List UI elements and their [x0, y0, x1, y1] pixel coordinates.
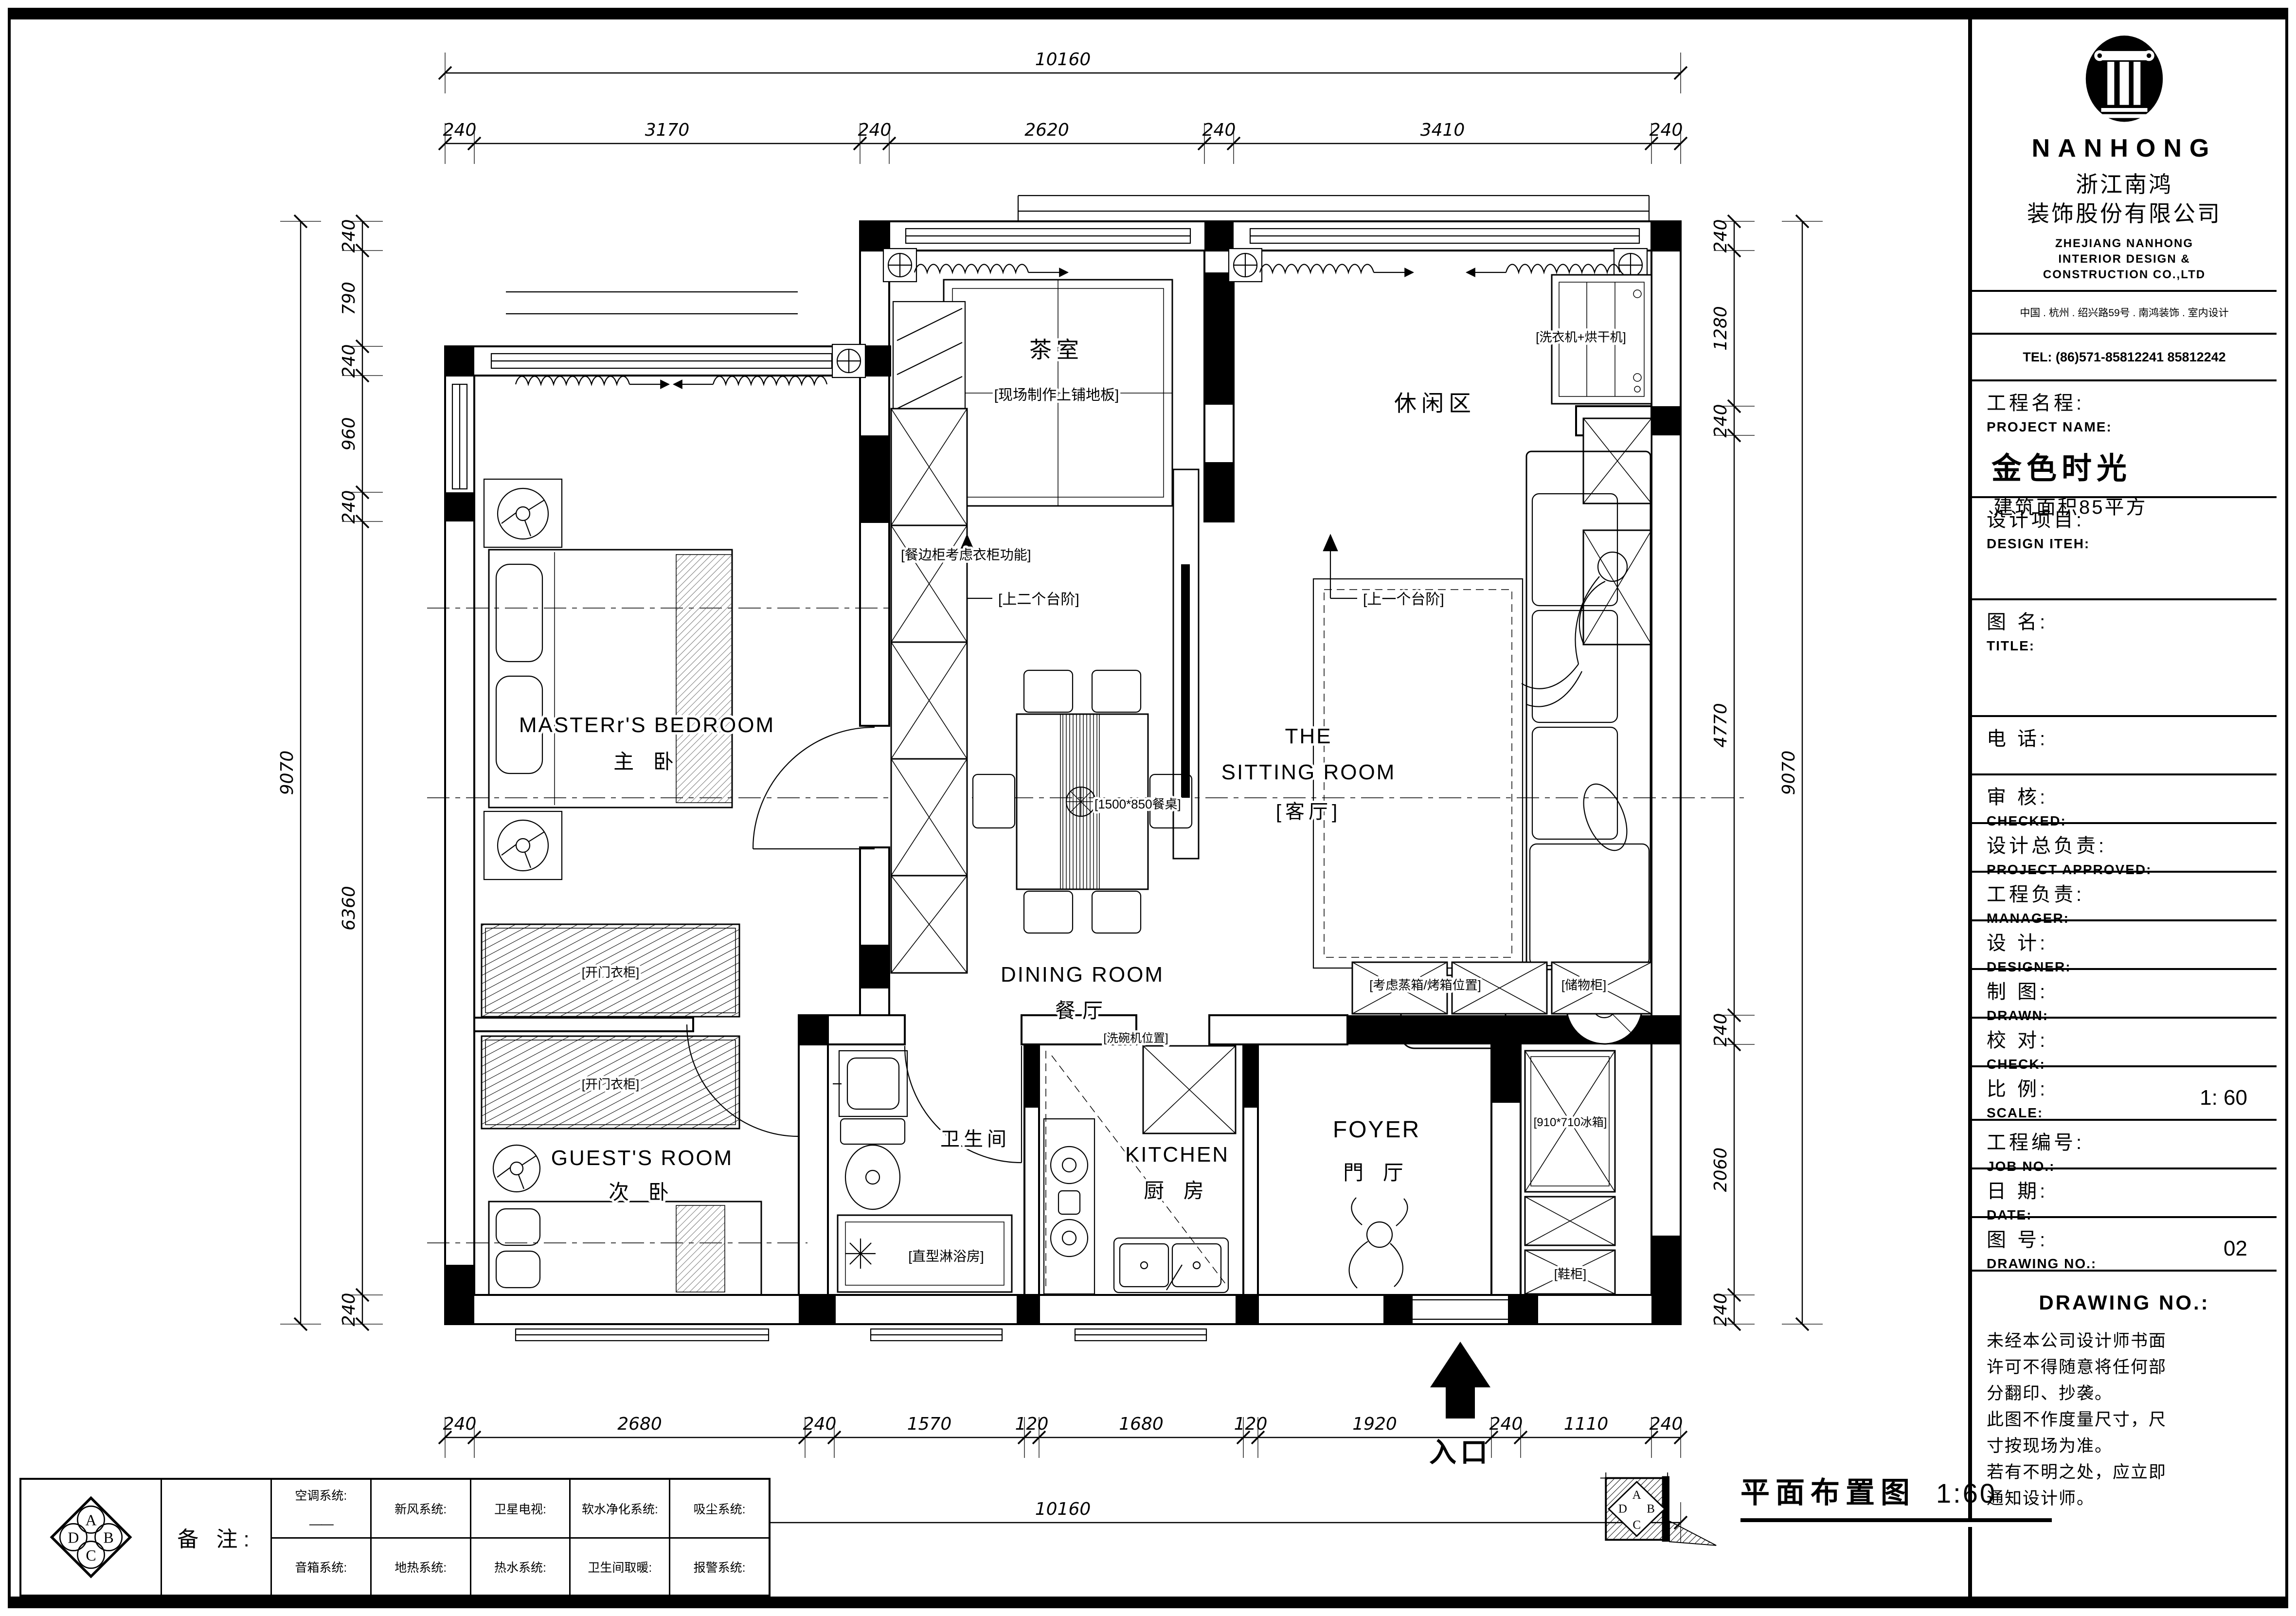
- label-foyer-cn: 門 厅: [1343, 1161, 1410, 1184]
- title-block: NANHONG 浙江南鸿 装饰股份有限公司 ZHEJIANG NANHONG I…: [1968, 19, 2277, 1597]
- label-steps-two: [上二个台阶]: [998, 592, 1079, 608]
- disclaimer-heading: DRAWING NO.:: [1987, 1291, 2262, 1314]
- label-oven: [考虑蒸箱/烤箱位置]: [1369, 978, 1481, 992]
- ceiling-fan-icon: [498, 820, 548, 871]
- svg-text:10160: 10160: [1035, 50, 1091, 70]
- svg-text:240: 240: [1711, 404, 1731, 438]
- svg-text:4770: 4770: [1711, 703, 1731, 748]
- svg-text:790: 790: [339, 282, 359, 315]
- sheet-cube-icon: A B C D: [1596, 1469, 1718, 1559]
- svg-text:240: 240: [1489, 1414, 1523, 1434]
- svg-text:2060: 2060: [1711, 1148, 1731, 1192]
- svg-text:240: 240: [443, 120, 477, 140]
- disclaimer-line: 寸按现场为准。: [1987, 1433, 2262, 1459]
- master-bed: [489, 550, 732, 808]
- label-shower: [直型淋浴房]: [908, 1249, 984, 1264]
- field-label-en: DESIGN ITEH:: [1987, 536, 2262, 552]
- label-wardrobe-2: [开门衣柜]: [582, 1077, 639, 1092]
- company-cn-1: 浙江南鸿: [1987, 170, 2262, 199]
- title-underline: [1740, 1518, 2052, 1527]
- svg-text:120: 120: [1234, 1414, 1268, 1434]
- drawing-scale-text: 1:60: [1936, 1477, 1997, 1509]
- label-storage: [储物柜]: [1561, 978, 1606, 992]
- svg-text:9070: 9070: [277, 751, 297, 795]
- svg-text:B: B: [1647, 1503, 1655, 1516]
- system-water-softening: 软水净化系统:: [569, 1480, 669, 1537]
- label-fridge: [910*710冰箱]: [1534, 1116, 1607, 1129]
- project-label-en: PROJECT NAME:: [1987, 419, 2262, 435]
- compass-d: D: [68, 1529, 79, 1546]
- project-label-cn: 工程名程:: [1987, 387, 2262, 415]
- field-date: 日 期: DATE:: [1972, 1169, 2277, 1218]
- compass-b: B: [104, 1529, 114, 1546]
- drawing-title-text: 平面布置图: [1740, 1469, 1916, 1511]
- svg-text:240: 240: [339, 490, 359, 524]
- floor-plan: 茶室 [现场制作上铺地板] 休闲区 [洗衣机+烘干机] [上二个台阶] [上一个…: [0, 0, 2296, 1616]
- company-en-2: INTERIOR DESIGN &: [1987, 251, 2262, 267]
- svg-text:240: 240: [443, 1414, 477, 1434]
- compass-c: C: [86, 1547, 96, 1564]
- label-leisure: 休闲区: [1394, 391, 1476, 416]
- disclaimer-line: 未经本公司设计师书面: [1987, 1328, 2262, 1354]
- svg-text:1680: 1680: [1119, 1414, 1164, 1434]
- label-tea-room: 茶室: [1029, 337, 1084, 362]
- compass-a: A: [85, 1512, 96, 1529]
- system-satellite-tv: 卫星电视:: [470, 1480, 570, 1537]
- svg-text:A: A: [1632, 1489, 1641, 1502]
- brand-name: NANHONG: [1987, 134, 2262, 163]
- field-label-cn: 审 核:: [1987, 781, 2262, 809]
- field-label-cn: 工程负责:: [1987, 879, 2262, 907]
- field-title: 图 名: TITLE:: [1972, 600, 2277, 717]
- foyer-person: [1349, 1198, 1408, 1288]
- label-sitting-1: THE: [1285, 724, 1332, 748]
- company-header: NANHONG 浙江南鸿 装饰股份有限公司 ZHEJIANG NANHONG I…: [1972, 19, 2277, 292]
- ceiling-fan-icon: [498, 488, 548, 539]
- svg-text:6360: 6360: [339, 886, 359, 931]
- dimension-chain-left: 2407902409602406360240: [339, 215, 383, 1330]
- label-dining-en: DINING ROOM: [1001, 963, 1164, 987]
- svg-text:9070: 9070: [1779, 751, 1799, 795]
- field-label-cn: 设 计:: [1987, 927, 2262, 955]
- company-address: 中国 . 杭州 . 绍兴路59号 . 南鸿装饰 . 室内设计: [1972, 292, 2277, 335]
- svg-text:240: 240: [339, 344, 359, 378]
- guest-bed: [489, 1202, 761, 1295]
- disclaimer-line: 许可不得随意将任何部: [1987, 1354, 2262, 1381]
- field-checked: 审 核: CHECKED:: [1972, 775, 2277, 824]
- field-drawing-no: 图 号: DRAWING NO.: 02: [1972, 1218, 2277, 1272]
- svg-text:240: 240: [1202, 120, 1236, 140]
- field-label-cn: 校 对:: [1987, 1024, 2262, 1053]
- field-label-cn: 日 期:: [1987, 1175, 2262, 1203]
- svg-text:2620: 2620: [1024, 120, 1069, 140]
- field-phone: 电 话:: [1972, 717, 2277, 775]
- kitchen: [1044, 1046, 1236, 1294]
- step-annotations: [960, 535, 1357, 598]
- svg-text:1920: 1920: [1352, 1414, 1397, 1434]
- dimension-total-top: 10160: [439, 50, 1687, 93]
- system-alarm: 报警系统:: [669, 1537, 769, 1595]
- system-vacuum: 吸尘系统:: [669, 1480, 769, 1537]
- field-label-cn: 制 图:: [1987, 976, 2262, 1004]
- svg-text:1110: 1110: [1564, 1414, 1609, 1434]
- svg-text:C: C: [1632, 1518, 1641, 1531]
- svg-text:240: 240: [1711, 1013, 1731, 1047]
- company-tel: TEL: (86)571-85812241 85812242: [1972, 335, 2277, 381]
- label-foyer-en: FOYER: [1333, 1117, 1420, 1143]
- dimension-chain-top: 240317024026202403410240: [439, 120, 1687, 164]
- field-project-approved: 设计总负责: PROJECT APPROVED:: [1972, 824, 2277, 873]
- label-master-cn: 主 卧: [613, 750, 681, 773]
- sideboard-cabinets: [891, 409, 967, 973]
- company-en-3: CONSTRUCTION CO.,LTD: [1987, 267, 2262, 283]
- system-fresh-air: 新风系统:: [370, 1480, 470, 1537]
- field-label-en: TITLE:: [1987, 638, 2262, 654]
- company-en-1: ZHEJIANG NANHONG: [1987, 236, 2262, 251]
- system-audio: 音箱系统:: [270, 1537, 370, 1595]
- svg-text:1570: 1570: [907, 1414, 952, 1434]
- svg-text:D: D: [1618, 1503, 1627, 1516]
- company-cn-2: 装饰股份有限公司: [1987, 199, 2262, 228]
- compass-diamond: A B C D: [21, 1480, 161, 1595]
- system-bathroom-heating: 卫生间取暖:: [569, 1537, 669, 1595]
- master-bedroom: [484, 479, 732, 880]
- stove: [1044, 1119, 1094, 1294]
- field-label-cn: 工程编号:: [1987, 1127, 2262, 1155]
- toilet: [841, 1119, 905, 1209]
- field-label-cn: 设计项目:: [1987, 504, 2262, 532]
- svg-text:120: 120: [1015, 1414, 1049, 1434]
- disclaimer-line: 分翻印、抄袭。: [1987, 1381, 2262, 1407]
- field-label-cn: 图 名:: [1987, 606, 2262, 634]
- svg-text:240: 240: [858, 120, 892, 140]
- nanhong-logo-icon: [2076, 34, 2173, 126]
- label-guest-cn: 次 卧: [609, 1181, 676, 1203]
- notes-table: A B C D 备 注: 空调系统:—— 新风系统: 卫星电视: 软水净化系统:…: [19, 1478, 771, 1597]
- svg-text:240: 240: [1711, 219, 1731, 253]
- field-label-cn: 图 号:: [1987, 1224, 2262, 1252]
- field-scale: 比 例: SCALE: 1: 60: [1972, 1067, 2277, 1121]
- sitting-room: [1173, 451, 1650, 1048]
- label-sideboard: [餐边柜考虑衣柜功能]: [901, 547, 1031, 562]
- svg-text:240: 240: [803, 1414, 837, 1434]
- remark-label: 备 注:: [161, 1480, 270, 1595]
- system-ac: 空调系统:——: [270, 1480, 370, 1537]
- sofa: [1526, 451, 1650, 970]
- system-floor-heating: 地热系统:: [370, 1537, 470, 1595]
- project-name-value: 金色时光: [1991, 444, 2262, 487]
- field-label-en: DRAWING NO.:: [1987, 1256, 2262, 1272]
- label-sitting-2: SITTING ROOM: [1221, 760, 1396, 784]
- double-sink: [1114, 1238, 1228, 1293]
- svg-text:240: 240: [339, 1293, 359, 1327]
- disclaimer-line: 此图不作度量尺寸，尺: [1987, 1407, 2262, 1433]
- dimension-total-right: 9070: [1779, 215, 1823, 1330]
- entrance-arrow: [1430, 1342, 1490, 1418]
- system-hot-water: 热水系统:: [470, 1537, 570, 1595]
- field-drawn: 制 图: DRAWN:: [1972, 970, 2277, 1019]
- drawing-title: A B C D 平面布置图 1:60: [1596, 1469, 2052, 1559]
- label-dining-table: [1500*850餐桌]: [1094, 797, 1181, 811]
- label-wardrobe-1: [开门衣柜]: [582, 965, 639, 980]
- label-master-en: MASTERr'S BEDROOM: [519, 713, 775, 737]
- label-sitting-3: [客厅]: [1276, 801, 1341, 823]
- ceiling-fan-icon: [493, 1145, 540, 1192]
- dimension-chain-bottom: 24026802401570120168012019202401110240: [439, 1414, 1687, 1458]
- label-dining-cn: 餐厅: [1055, 999, 1110, 1022]
- scale-value: 1: 60: [2200, 1086, 2247, 1110]
- svg-text:3170: 3170: [645, 120, 690, 140]
- label-tea-room-note: [现场制作上铺地板]: [994, 387, 1119, 403]
- svg-text:1280: 1280: [1711, 306, 1731, 351]
- svg-text:10160: 10160: [1035, 1499, 1091, 1519]
- label-guest-en: GUEST'S ROOM: [551, 1146, 733, 1170]
- field-project-name: 工程名程: PROJECT NAME: 金色时光 建筑面积85平方: [1972, 381, 2277, 498]
- field-design-item: 设计项目: DESIGN ITEH:: [1972, 498, 2277, 600]
- svg-text:240: 240: [1711, 1293, 1731, 1327]
- vanity-sink: [833, 1051, 907, 1116]
- drawing-sheet: 茶室 [现场制作上铺地板] 休闲区 [洗衣机+烘干机] [上二个台阶] [上一个…: [0, 0, 2296, 1616]
- svg-text:240: 240: [1650, 1414, 1683, 1434]
- field-designer: 设 计: DESIGNER:: [1972, 921, 2277, 970]
- label-kitchen-en: KITCHEN: [1125, 1143, 1229, 1167]
- field-label-cn: 设计总负责:: [1987, 830, 2262, 858]
- field-manager: 工程负责: MANAGER:: [1972, 873, 2277, 921]
- drawing-no-value: 02: [2224, 1237, 2247, 1261]
- svg-text:2680: 2680: [617, 1414, 662, 1434]
- exterior-context-lines: [506, 196, 1649, 314]
- dimension-chain-right: 240128024047702402060240: [1711, 215, 1755, 1330]
- dimension-total-left: 9070: [277, 215, 321, 1330]
- label-dishwasher: [洗碗机位置]: [1103, 1032, 1168, 1045]
- svg-text:240: 240: [1650, 120, 1683, 140]
- svg-text:3410: 3410: [1420, 120, 1465, 140]
- label-kitchen-cn: 厨 房: [1144, 1179, 1211, 1202]
- label-laundry: [洗衣机+烘干机]: [1536, 330, 1626, 344]
- field-job-no: 工程编号: JOB NO.:: [1972, 1121, 2277, 1169]
- field-check: 校 对: CHECK:: [1972, 1019, 2277, 1067]
- label-entrance: 入口: [1429, 1437, 1491, 1468]
- label-bathroom: 卫生间: [940, 1129, 1010, 1150]
- svg-text:960: 960: [339, 417, 359, 451]
- label-shoe: [鞋柜]: [1554, 1267, 1586, 1281]
- label-steps-one: [上一个台阶]: [1363, 592, 1444, 608]
- svg-text:240: 240: [339, 219, 359, 253]
- field-label-cn: 电 话:: [1987, 723, 2262, 751]
